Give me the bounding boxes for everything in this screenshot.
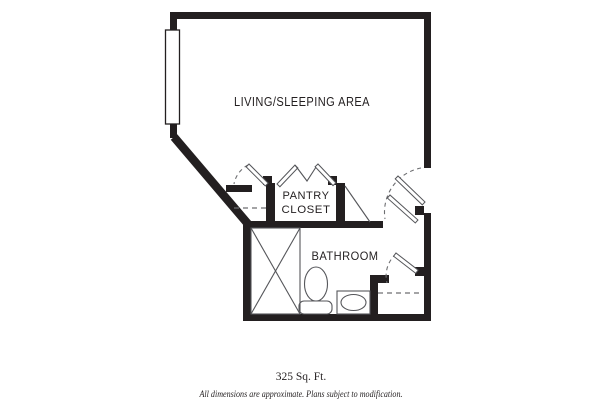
pantry-label-line1: PANTRY <box>283 190 330 202</box>
hinge-block-entry <box>415 206 424 215</box>
bathroom-label: BATHROOM <box>312 249 379 263</box>
wall-right-upper <box>424 12 431 168</box>
pantry-label-line2: CLOSET <box>282 204 331 216</box>
shower-icon <box>251 228 300 314</box>
floor-plan-page: LIVING/SLEEPING AREA PANTRY CLOSET BATHR… <box>0 0 600 411</box>
living-area-label: LIVING/SLEEPING AREA <box>234 95 370 109</box>
window-icon <box>166 30 180 124</box>
sink-icon <box>337 291 370 314</box>
wall-diagonal <box>174 137 248 224</box>
bathroom-door-icon <box>386 253 418 283</box>
floor-plan-drawing: LIVING/SLEEPING AREA PANTRY CLOSET BATHR… <box>0 0 600 411</box>
diagonal-partition-line <box>345 186 370 222</box>
wall-bottom <box>243 314 431 321</box>
square-footage-label: 325 Sq. Ft. <box>276 371 327 383</box>
toilet-icon <box>299 267 332 314</box>
disclaimer-text: All dimensions are approximate. Plans su… <box>199 389 403 400</box>
wall-bathroom-left <box>243 221 251 321</box>
wall-closet-stub <box>226 185 252 192</box>
wall-divider <box>243 221 383 228</box>
closet-door-icon <box>234 164 268 186</box>
wall-top <box>170 12 431 19</box>
wall-right-lower <box>424 213 431 321</box>
bifold-door-icon <box>277 164 336 187</box>
wall-entry-closet-stub-v <box>370 275 378 321</box>
